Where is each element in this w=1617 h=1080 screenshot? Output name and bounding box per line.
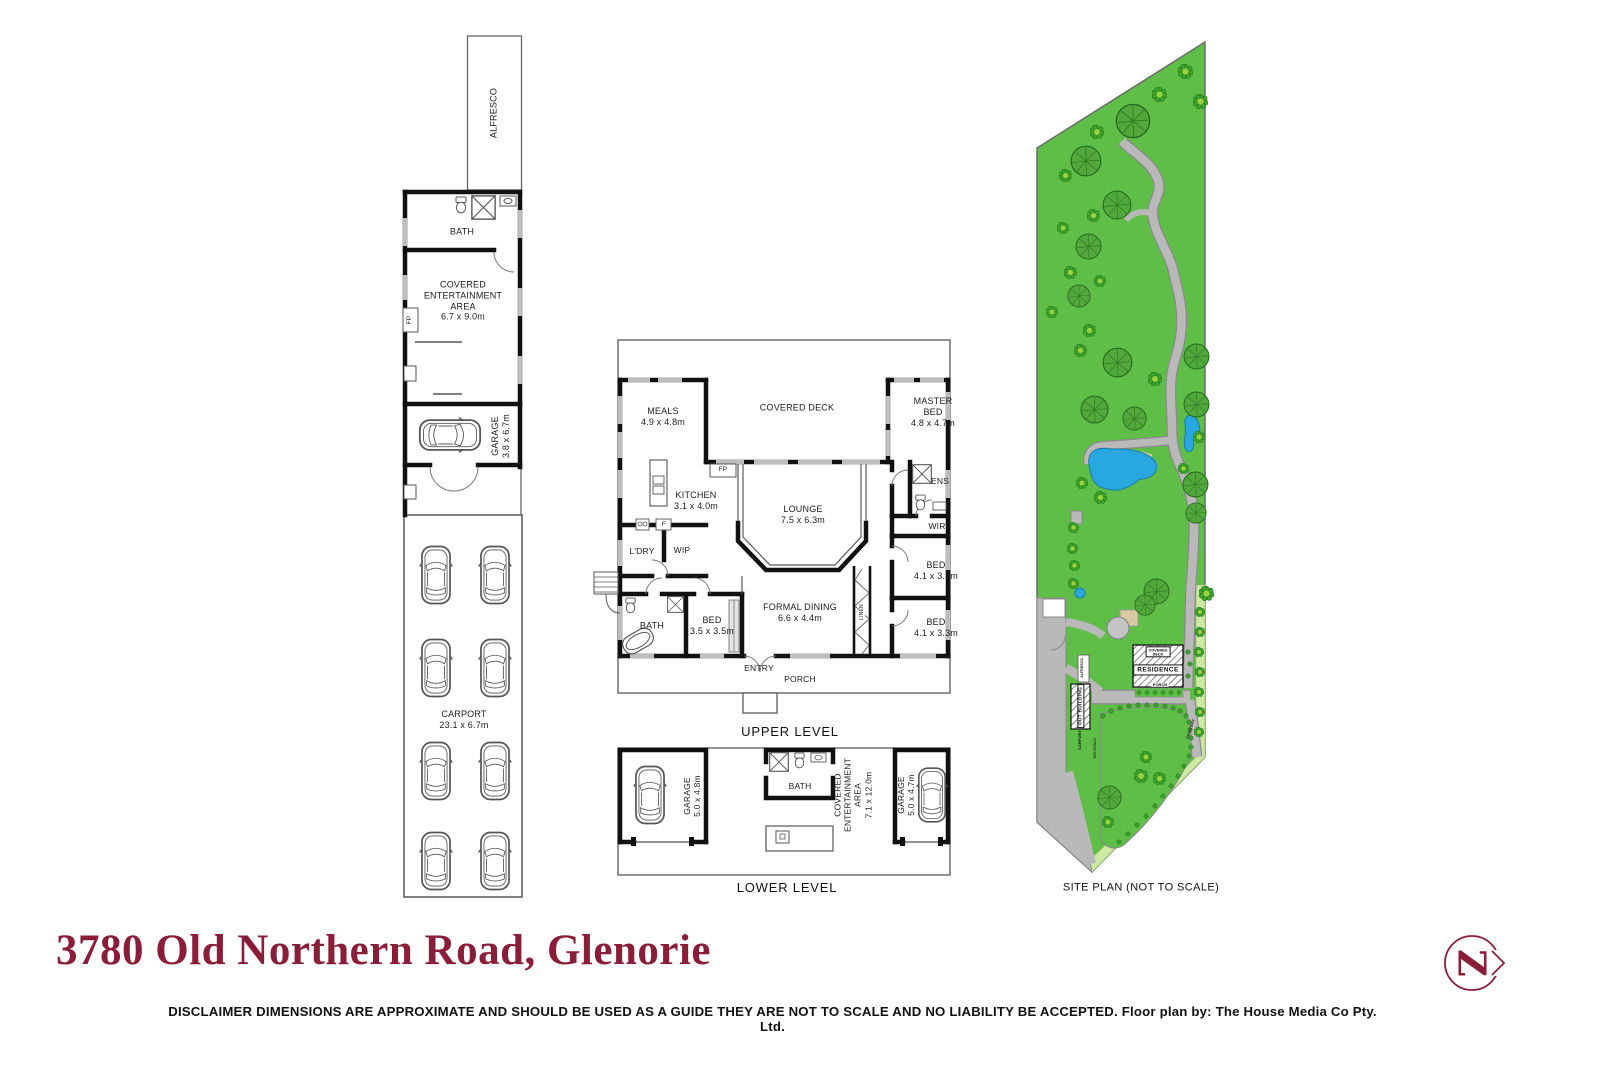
room-label-covered-entertainment: COVERED ENTERTAINMENT AREA 7.1 x 12.0m	[833, 758, 874, 832]
room-label-ens: ENS	[931, 476, 949, 486]
label-entry: ENTRY	[744, 663, 774, 673]
room-label-bath: BATH	[640, 621, 664, 632]
room-label-covered-deck: COVERED DECK	[760, 403, 834, 414]
room-label-carport: CARPORT 23.1 x 6.7m	[439, 709, 488, 731]
room-label-meals: MEALS 4.9 x 4.8m	[641, 406, 685, 428]
shower-icon	[913, 465, 932, 484]
floorplan-artwork: Z	[0, 0, 1617, 1080]
left-wing-plan	[403, 36, 522, 897]
label-fireplace: FP	[719, 466, 728, 474]
floorplan-page: Z ALFRESCO BATH COVERED ENTERTAINMENT AR…	[0, 0, 1617, 1080]
room-label-bed1: BED 4.1 x 3.3m	[914, 560, 958, 582]
disclaimer-text: DISCLAIMER DIMENSIONS ARE APPROXIMATE AN…	[160, 1004, 1385, 1034]
room-label-garage: GARAGE 3.8 x 6.7m	[490, 414, 512, 458]
disclaimer-body: DISCLAIMER DIMENSIONS ARE APPROXIMATE AN…	[168, 1004, 1122, 1019]
site-plan	[1037, 42, 1214, 872]
label-fridge: F	[662, 521, 666, 529]
site-label-out-building: OUT BUILDING	[1077, 684, 1084, 728]
room-label-bath: BATH	[789, 781, 812, 791]
car-icon	[917, 768, 948, 822]
room-label-laundry: L'DRY	[629, 546, 654, 556]
site-label-covered-deck: COVERED DECK	[1146, 646, 1171, 657]
car-icon	[420, 418, 480, 453]
stairs-icon	[594, 572, 620, 613]
room-label-garage-right: GARAGE 5.0 x 4.7m	[896, 774, 916, 816]
room-label-lounge: LOUNGE 7.5 x 6.3m	[781, 504, 825, 526]
shed	[1071, 511, 1082, 524]
caption-upper-level: UPPER LEVEL	[741, 724, 839, 740]
room-label-bath: BATH	[450, 227, 474, 238]
page-title: 3780 Old Northern Road, Glenorie	[56, 926, 711, 975]
toilet-icon	[916, 495, 925, 510]
toilet-icon	[795, 753, 804, 768]
room-label-garage-left: GARAGE 5.0 x 4.8m	[682, 775, 702, 817]
site-label-carport: CARPORT	[1078, 730, 1082, 750]
label-porch: PORCH	[784, 674, 816, 684]
site-label-residence: RESIDENCE	[1133, 664, 1183, 675]
room-label-master-bed: MASTER BED 4.8 x 4.7m	[911, 396, 955, 428]
toilet-icon	[626, 598, 635, 613]
car-icon	[634, 767, 667, 824]
shower-icon	[668, 597, 684, 613]
label-linen: LINEN	[859, 603, 865, 621]
label-fireplace: FP	[406, 316, 414, 325]
caption-lower-level: LOWER LEVEL	[737, 880, 838, 896]
room-label-alfresco: ALFRESCO	[489, 88, 500, 138]
caption-site-plan: SITE PLAN (NOT TO SCALE)	[1063, 881, 1219, 894]
room-label-wip: WIP	[674, 545, 691, 555]
room-label-bed2: BED 4.1 x 3.3m	[914, 617, 958, 639]
site-label-alfresco: ALFRESCO	[1081, 657, 1085, 679]
vanity-icon	[500, 196, 516, 206]
pond-dot	[1075, 588, 1085, 598]
site-label-driveway-left: DRIVEWAY	[1093, 738, 1097, 759]
room-label-covered-entertainment: COVERED ENTERTAINMENT AREA 6.7 x 9.0m	[424, 279, 502, 322]
room-label-bed3: BED 3.5 x 3.5m	[690, 615, 734, 637]
brand-logo: Z	[1445, 936, 1506, 990]
water-tank	[1107, 617, 1129, 639]
room-label-formal-dining: FORMAL DINING 6.6 x 4.4m	[763, 602, 837, 624]
toilet-icon	[456, 197, 466, 213]
logo-letter: Z	[1450, 949, 1495, 977]
site-label-porch: PORCH	[1151, 683, 1169, 687]
shower-icon	[770, 753, 789, 772]
shower-icon	[472, 196, 495, 219]
room-label-kitchen: KITCHEN 3.1 x 4.0m	[674, 490, 718, 512]
room-label-wir: WIR	[928, 521, 945, 531]
upper-level-plan	[594, 340, 950, 713]
